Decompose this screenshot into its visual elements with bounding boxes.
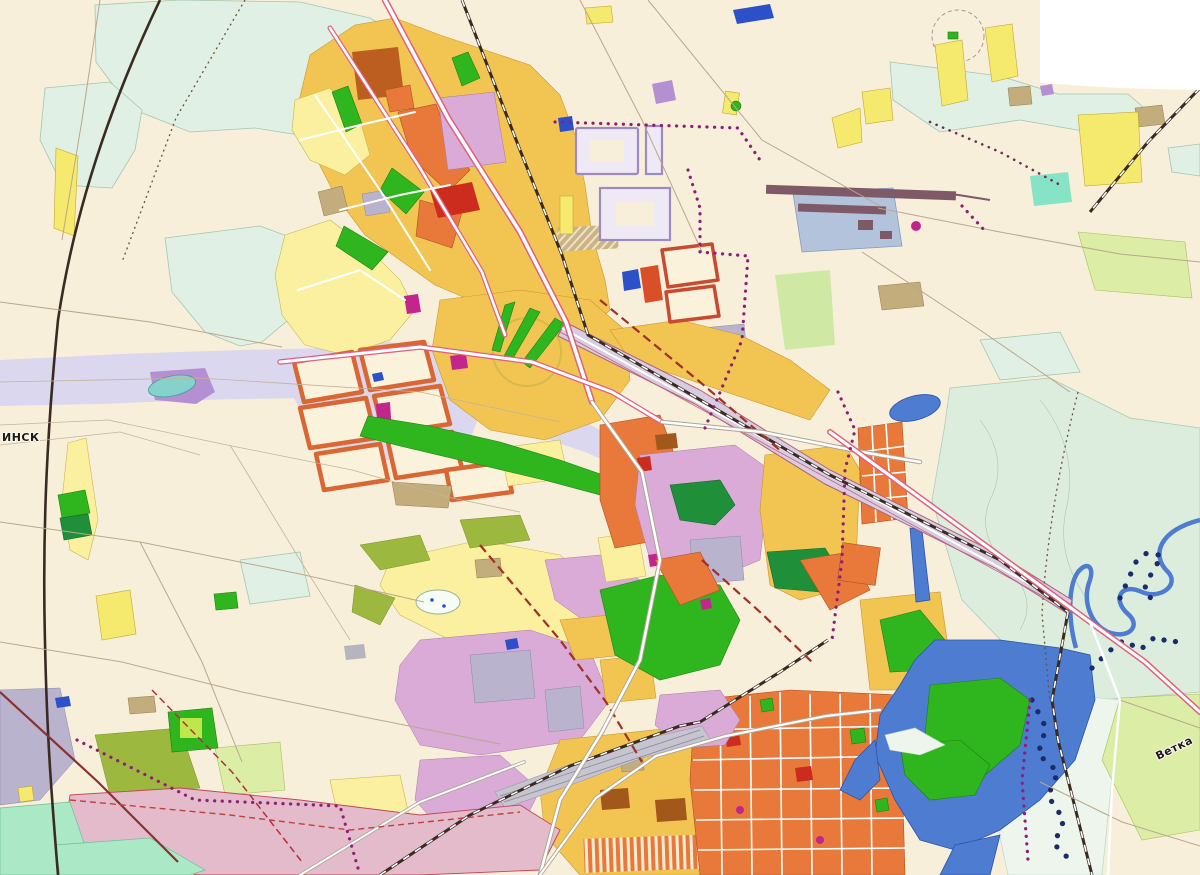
map-shape (470, 650, 535, 703)
map-shape (385, 85, 414, 112)
map-shape (1078, 112, 1142, 186)
map-shape (1135, 105, 1165, 127)
map-shape (545, 686, 584, 732)
map-shape (560, 196, 573, 234)
map-shape (215, 742, 285, 795)
map-shape (1040, 84, 1054, 96)
map-shape (911, 221, 921, 231)
map-shape (862, 88, 893, 124)
map-shape (816, 836, 824, 844)
map-shape (1030, 172, 1072, 206)
map-shape (18, 786, 34, 802)
map-shape (1078, 232, 1192, 298)
map-shape (96, 590, 136, 640)
map-shape (558, 116, 574, 132)
map-shape (58, 490, 90, 518)
map-shape (1008, 86, 1032, 106)
map-shape (55, 696, 71, 708)
map-shape (54, 148, 78, 236)
map-shape (655, 798, 687, 822)
map-shape (392, 482, 452, 508)
map-shape (736, 806, 744, 814)
map-shape (655, 433, 678, 450)
map-shape (590, 140, 624, 162)
map-shape (585, 6, 613, 24)
map-shape (850, 728, 866, 744)
map-shape (316, 444, 388, 490)
map-shape (300, 398, 376, 448)
map-shape (838, 543, 881, 586)
map-shape (875, 798, 889, 812)
map-shape (180, 718, 202, 738)
map-shape (616, 202, 654, 226)
map-shape (662, 244, 718, 287)
map-shape (760, 698, 774, 712)
map-shape (775, 270, 835, 350)
map-shape (948, 32, 958, 39)
map-shape (878, 282, 924, 310)
map-shape (344, 644, 366, 660)
master-plan-svg: ИНСК Ветка (0, 0, 1200, 875)
map-shape (1168, 144, 1200, 176)
map-shape (128, 696, 156, 714)
map-shape (666, 286, 719, 322)
map-shape (622, 269, 641, 291)
map-shape (450, 354, 468, 370)
map-shape (505, 638, 519, 650)
map-shape (880, 231, 892, 239)
city-master-plan-map[interactable]: ИНСК Ветка (0, 0, 1200, 875)
map-shape (652, 80, 676, 104)
map-edge-cutout (1040, 0, 1200, 90)
minsk-road-label: ИНСК (2, 431, 39, 444)
map-shape (442, 604, 446, 608)
map-shape (858, 220, 873, 230)
map-shape (214, 592, 238, 610)
map-shape (700, 598, 712, 610)
map-shape (404, 294, 421, 314)
map-shape (430, 598, 434, 602)
map-shape (795, 766, 813, 782)
map-shape (60, 514, 92, 540)
map-shape (731, 101, 741, 111)
